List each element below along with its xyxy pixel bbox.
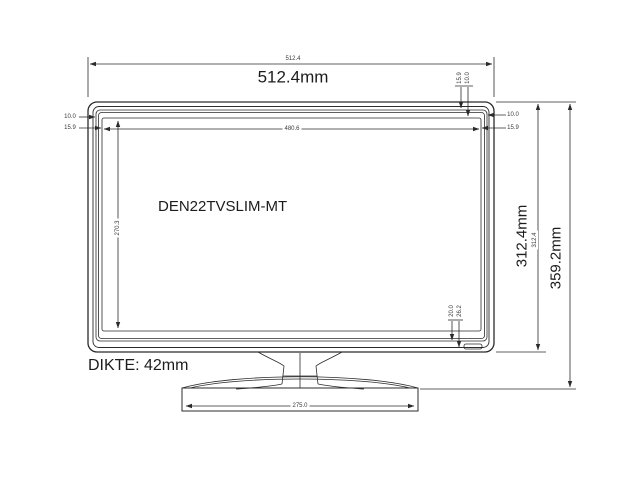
bezel-top-a-label: 15.9: [457, 72, 463, 84]
top-right-bezel-callouts: [455, 86, 473, 116]
bottom-detail-b-label: 26.2: [457, 305, 463, 317]
monitor-outline: [88, 102, 494, 352]
screen-width-ref-label: 480.6: [282, 126, 301, 132]
bezel-left-a-label: 10.0: [64, 114, 76, 120]
screen-frame: [96, 110, 487, 341]
bottom-right-callouts: [448, 320, 482, 349]
technical-drawing-page: 512.4 512.4mm DEN22TVSLIM-MT 480.6 270.3…: [0, 0, 640, 480]
screen-part-height-ref-label: 312.4: [532, 230, 538, 249]
overall-width-ref-label: 512.4: [283, 56, 302, 62]
power-button: [464, 344, 482, 349]
bezel-right-b-label: 15.9: [507, 125, 519, 131]
left-bezel-callouts: [79, 117, 101, 128]
overall-width-label: 512.4mm: [258, 69, 329, 86]
model-label: DEN22TVSLIM-MT: [158, 199, 287, 214]
total-height-label: 359.2mm: [549, 227, 564, 290]
screen-height-ref-label: 270.3: [115, 218, 121, 237]
stand-neck: [236, 352, 364, 389]
bezel-top-b-label: 10.0: [465, 72, 471, 84]
bezel-left-b-label: 15.9: [64, 125, 76, 131]
bezel-right-a-label: 10.0: [507, 112, 519, 118]
bottom-detail-a-label: 20.0: [449, 305, 455, 317]
base-width-ref-label: 275.0: [290, 403, 309, 409]
panel-dimensions: [104, 121, 479, 328]
thickness-label: DIKTE: 42mm: [88, 358, 188, 374]
panel-opening: [102, 118, 481, 331]
screen-part-height-label: 312.4mm: [515, 205, 530, 268]
